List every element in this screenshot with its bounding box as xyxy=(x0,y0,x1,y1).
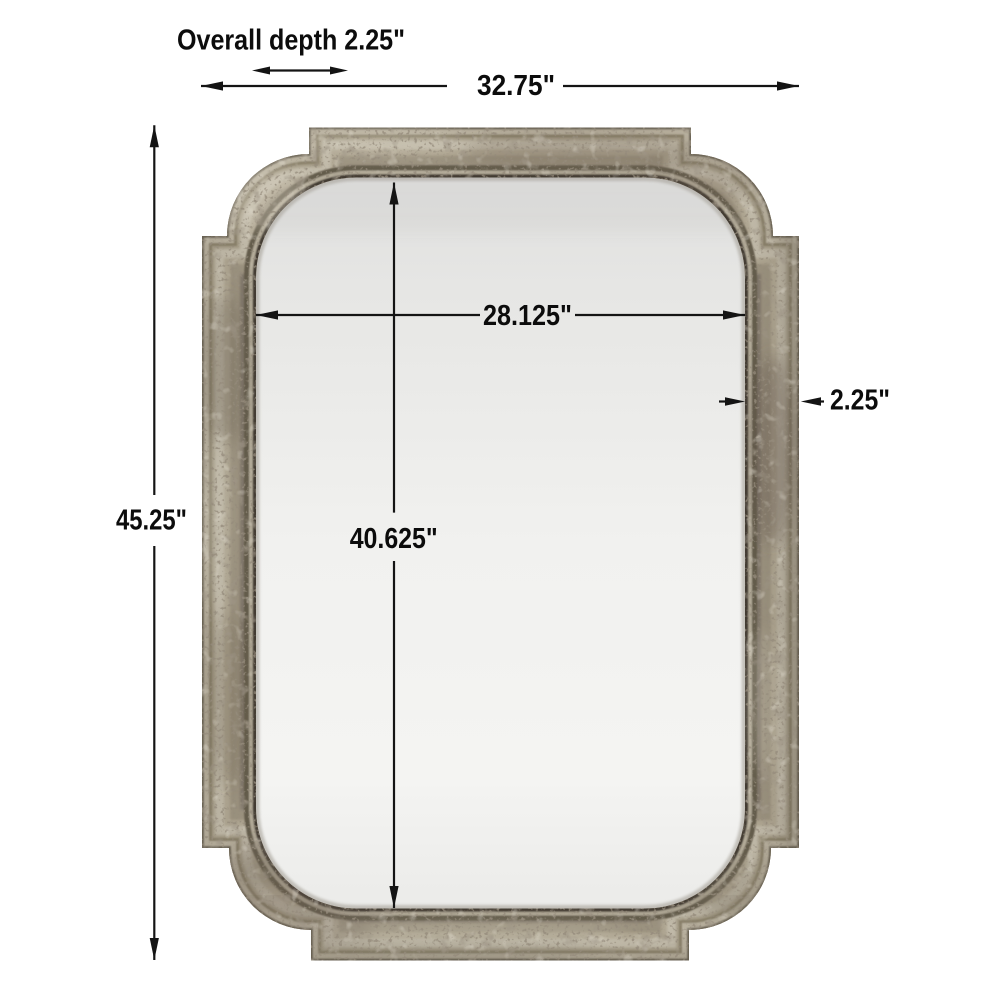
svg-text:40.625": 40.625" xyxy=(350,523,438,555)
svg-text:2.25": 2.25" xyxy=(830,384,890,416)
svg-text:28.125": 28.125" xyxy=(483,300,572,332)
svg-text:32.75": 32.75" xyxy=(477,70,555,102)
svg-text:Overall depth 2.25": Overall depth 2.25" xyxy=(177,25,405,57)
svg-text:45.25": 45.25" xyxy=(116,505,187,537)
